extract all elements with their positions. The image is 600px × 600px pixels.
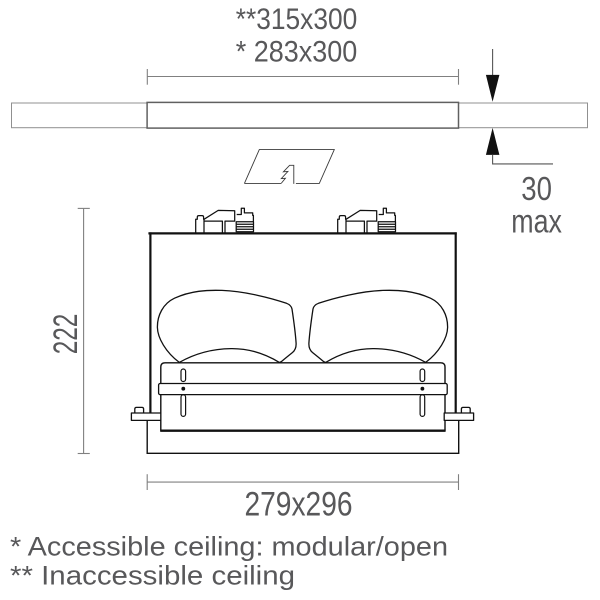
svg-text:279x296: 279x296 — [245, 486, 353, 524]
svg-text:* 283x300: * 283x300 — [236, 36, 358, 69]
svg-text:max: max — [511, 204, 562, 241]
svg-text:30: 30 — [521, 171, 552, 208]
svg-text:** Inaccessible ceiling: ** Inaccessible ceiling — [10, 561, 295, 591]
svg-text:222: 222 — [47, 314, 85, 355]
svg-text:* Accessible ceiling: modular/: * Accessible ceiling: modular/open — [10, 532, 448, 562]
svg-text:**315x300: **315x300 — [236, 3, 358, 36]
